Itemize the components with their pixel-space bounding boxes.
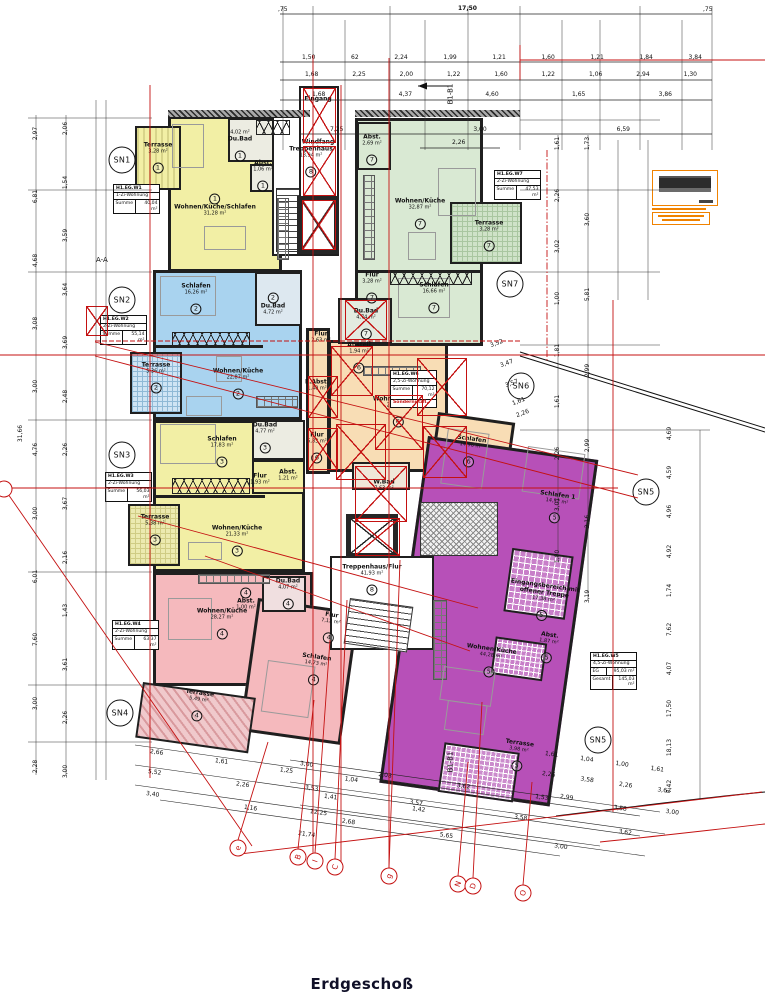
survey-marker-sn5: SN5 <box>633 479 660 506</box>
demolition-mark <box>303 146 336 196</box>
table <box>408 232 436 260</box>
axis-marker: g <box>378 865 400 887</box>
dim-total: 17,50 <box>458 5 477 12</box>
dimension-chain-right-1: 1,612,263,021,001,811,612,263,011,00 <box>552 140 564 560</box>
room-label: Abst.2,69 m²7 <box>362 134 382 165</box>
dimension: 2,26 <box>452 139 465 146</box>
demolition-mark <box>355 518 400 556</box>
survey-marker-sn3: SN3 <box>109 442 136 469</box>
survey-marker-sn5b: SN5 <box>585 727 612 754</box>
survey-marker-sn1: SN1 <box>109 147 136 174</box>
sofa <box>204 226 246 250</box>
dimension: 3,52 <box>489 338 504 349</box>
kitchen-4 <box>198 574 270 584</box>
dimension-left-total: 31,66 <box>17 425 24 442</box>
sheet-title: Erdgeschoß <box>311 975 414 993</box>
dimension-chain-left-outer: 2,976,814,683,083,004,763,006,017,603,00… <box>30 130 42 770</box>
room-label: Wohnen/Küche32,87 m²7 <box>395 198 445 229</box>
room-label: Terrasse5,49 m²4 <box>182 689 215 724</box>
section-label-aa: A-A <box>96 256 108 264</box>
staircase-lower <box>344 598 414 652</box>
revision-stamp <box>652 170 718 225</box>
room-label: Flur2,63 m² <box>311 332 331 345</box>
survey-marker-sn4: SN4 <box>107 700 134 727</box>
dimension-chain: 1,684,374,601,653,86 <box>312 91 672 98</box>
dimension-chain-right-2: 1,733,605,812,992,992,163,19 <box>582 140 594 600</box>
survey-marker-sn2: SN2 <box>109 287 136 314</box>
room-label: Wohnen/Küche28,27 m²4 <box>197 608 247 639</box>
dimension-chain: 1,50622,241,991,211,601,211,843,84 <box>302 54 702 61</box>
axis-marker: O <box>512 882 534 904</box>
dim-total-left: ,75 <box>278 6 288 13</box>
room-label: Terrasse3,28 m²1 <box>144 142 173 173</box>
info-box-w4: H1.EG.W42-Zi-Wohnung Summe63,37 m² <box>112 620 159 650</box>
demolition-mark <box>423 426 467 478</box>
dimension: 2,26 <box>515 408 530 419</box>
room-label: 2Du.Bad4,72 m² <box>261 285 285 316</box>
kitchen-1 <box>277 198 289 260</box>
dim-total-right: ,75 <box>703 6 713 13</box>
wardrobe <box>172 332 250 348</box>
room-label: 1Wohnen/Küche/Schlafen31,28 m² <box>174 186 256 217</box>
dimension-chain-left-inner: 2,061,543,593,643,692,482,263,672,161,43… <box>60 125 72 775</box>
demolition-mark <box>308 376 338 418</box>
info-box-w1: H1.EG.W11-Zi-Wohnung Summe40,04 m² <box>113 184 160 214</box>
survey-marker-sn7: SN7 <box>497 271 524 298</box>
sofa <box>444 700 488 735</box>
section-label-b1-bottom: B1-B1 <box>446 752 454 773</box>
axis-marker: I <box>304 850 326 872</box>
room-label: Abst.1,06 m²1 <box>253 160 273 191</box>
room-label: Terrasse5,36 m²2 <box>142 362 171 393</box>
demolition-mark <box>302 200 336 250</box>
info-box-w3: H1.EG.W32-Zi-Wohnung Summe56,03 m² <box>105 472 152 502</box>
bed <box>172 124 204 168</box>
room-label: Schlafen16,26 m²2 <box>181 283 210 314</box>
demolition-mark <box>308 428 338 470</box>
room-label: Schlafen16,66 m²7 <box>419 282 448 313</box>
room-label: Wohnen/Küche22,87 m²2 <box>213 368 263 399</box>
room-label: Schlafen14,73 m²4 <box>298 653 331 688</box>
room-label: Du.Bad4,07 m²4 <box>276 578 300 609</box>
room-label: Terrasse5,38 m²3 <box>141 514 170 545</box>
info-box-w5: H1.EG.W54,5-Zi-Wohnung EG95,03 m² Gesamt… <box>590 652 637 690</box>
kitchen-7 <box>363 175 375 260</box>
demolition-mark <box>417 358 467 416</box>
room-label: Abst.1,21 m² <box>278 470 298 483</box>
room-label: Terrasse3,28 m²7 <box>475 220 504 251</box>
room-label: Flur3,28 m²7 <box>362 272 382 303</box>
room-label: Schlafen17,83 m²3 <box>207 436 236 467</box>
room-label: 4,02 m²Du.Bad1 <box>228 130 252 161</box>
demolition-mark <box>345 300 387 340</box>
dimension-chain-right-3: 4,694,594,964,921,747,624,0717,5018,137,… <box>664 430 676 790</box>
axis-marker: C <box>324 856 346 878</box>
dimension: 21,74 <box>298 830 316 839</box>
room-label: 4Abst.1,00 m² <box>236 580 256 611</box>
axis-marker: B <box>287 846 309 868</box>
wardrobe <box>256 120 290 135</box>
demolition-mark <box>303 88 336 143</box>
demolition-mark <box>355 466 407 522</box>
room-label: Wohnen/Küche21,33 m²3 <box>212 525 262 556</box>
axis-marker <box>0 478 15 500</box>
room-label: Treppenhaus/Flur41,93 m²8 <box>342 564 401 595</box>
stair-landing <box>420 502 498 556</box>
room-label: Du.Bad4,77 m²3 <box>253 422 277 453</box>
demolition-mark <box>86 306 108 336</box>
dimension-chain: 1,682,252,001,221,601,221,062,941,30 <box>305 71 697 78</box>
info-box-w7: H1.EG.W72-Zi-Wohnung Summe47,53 m² <box>494 170 541 200</box>
wardrobe <box>172 478 250 494</box>
dimension-chain: 7,253,006,59 <box>330 126 630 133</box>
room-label: Flur1,93 m² <box>250 474 270 487</box>
dimension-chain: 2,263,582,263,62 <box>542 770 672 795</box>
floorplan-sheet: Terrasse3,28 m²1 1Wohnen/Küche/Schlafen3… <box>0 0 765 999</box>
dimension: 3,47 <box>499 358 514 369</box>
dimension-chain: 1,611,041,001,61 <box>545 750 665 774</box>
room-label: Terrasse3,98 m²5 <box>502 739 535 774</box>
axis-marker: e <box>227 837 249 859</box>
section-label-b1-top: B1-B1 <box>446 84 454 105</box>
monitor-icon <box>652 170 718 206</box>
